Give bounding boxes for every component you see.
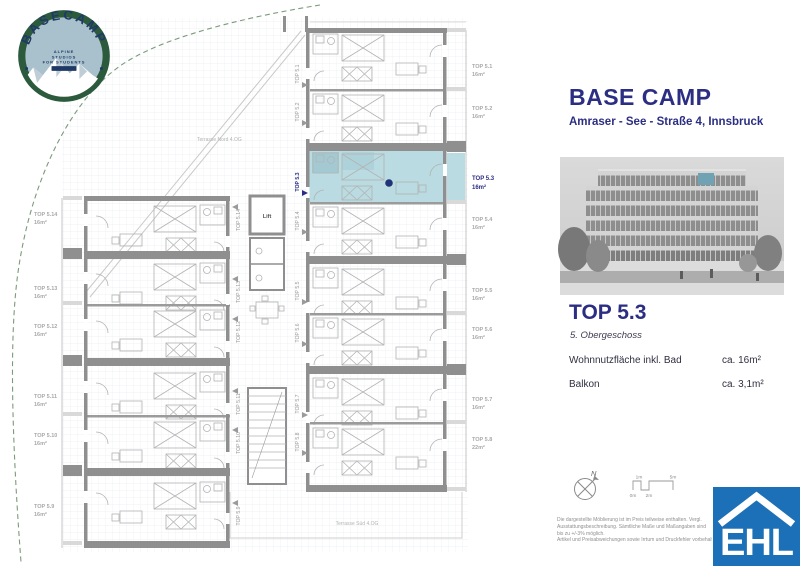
corridor-label: TOP 5.13 xyxy=(236,281,242,303)
unit-area: 16m² xyxy=(34,440,47,447)
unit-area: 16m² xyxy=(34,511,47,518)
corridor-label: TOP 5.2 xyxy=(295,102,301,121)
corridor-label: TOP 5.4 xyxy=(295,211,301,230)
staircase xyxy=(248,388,286,484)
corridor-label-highlighted: TOP 5.3 xyxy=(295,172,301,191)
balcony-label: Balkon xyxy=(569,379,600,390)
unit-label: TOP 5.2 xyxy=(472,106,492,112)
corridor-label: TOP 5.7 xyxy=(295,394,301,413)
disclaimer-line: Ausstattungsbeschreibung. Sämtliche Maße… xyxy=(557,524,712,531)
unit-label: TOP 5.1 xyxy=(472,64,492,70)
unit-label: TOP 5.9 xyxy=(34,504,54,510)
tree xyxy=(558,227,590,271)
terrace-north-label: Terrasse Nord 4.OG xyxy=(197,137,242,143)
unit-label: TOP 5.10 xyxy=(34,433,57,439)
unit-area: 16m² xyxy=(34,219,47,226)
balcony-value: ca. 3,1m² xyxy=(722,379,764,390)
corridor-label: TOP 5.12 xyxy=(236,321,242,343)
logo-banner xyxy=(52,66,77,71)
logo-dot-icon xyxy=(25,67,28,70)
living-area-value: ca. 16m² xyxy=(722,355,761,366)
corridor-label: TOP 5.11 xyxy=(236,393,242,415)
unit-label: TOP 5.8 xyxy=(472,437,492,443)
scale-label: 0m xyxy=(630,493,637,499)
tree xyxy=(739,254,757,272)
disclaimer: Die dargestellte Möblierung ist im Preis… xyxy=(557,517,712,544)
disclaimer-line: Artikel und Preisabweichungen sowie Irrt… xyxy=(557,537,712,544)
disclaimer-line: bis zu +/-3% möglich. xyxy=(557,531,712,538)
corridor-label: TOP 5.9 xyxy=(236,506,242,525)
unit-floor: 5. Obergeschoss xyxy=(570,330,642,341)
logo-tagline: ALPINE xyxy=(54,49,75,54)
unit-area: 16m² xyxy=(472,295,485,302)
ehl-logo: EHL xyxy=(713,487,800,566)
corridor-label: TOP 5.14 xyxy=(236,209,242,231)
unit-title: TOP 5.3 xyxy=(569,301,646,325)
project-title: BASE CAMP xyxy=(569,84,712,111)
tree xyxy=(586,240,610,272)
unit-area: 16m² xyxy=(472,224,485,231)
scale-label: 1m xyxy=(636,475,643,481)
unit-area: 22m² xyxy=(472,444,485,451)
unit-area: 16m² xyxy=(472,404,485,411)
unit-label: TOP 5.14 xyxy=(34,212,58,218)
tree xyxy=(754,235,782,271)
unit-label: TOP 5.5 xyxy=(472,288,492,294)
unit-label: TOP 5.13 xyxy=(34,286,57,292)
highlight-dot xyxy=(385,179,393,187)
unit-area: 16m² xyxy=(34,331,47,338)
unit-label: TOP 5.12 xyxy=(34,324,57,330)
corridor-label: TOP 5.8 xyxy=(295,432,301,451)
corridor-label: TOP 5.5 xyxy=(295,281,301,300)
unit-5-3-highlight xyxy=(306,151,465,202)
scale-label: 5m xyxy=(670,475,677,481)
unit-area: 16m² xyxy=(472,71,485,78)
logo-tagline: STUDIOS xyxy=(52,54,77,59)
disclaimer-line: Die dargestellte Möblierung ist im Preis… xyxy=(557,517,712,524)
unit-label: TOP 5.4 xyxy=(472,217,493,223)
ehl-logo-text: EHL xyxy=(720,522,794,564)
basecamp-logo: BASECAMP ALPINE STUDIOS FOR STUDENTS xyxy=(18,7,110,100)
unit-area: 16m² xyxy=(34,401,47,408)
north-label: N xyxy=(591,469,597,478)
unit-area: 16m² xyxy=(34,293,47,300)
living-area-label: Wohnnutzfläche inkl. Bad xyxy=(569,355,682,366)
unit-area: 16m² xyxy=(472,334,485,341)
terrace-south-label: Terrasse Süd 4.OG xyxy=(336,521,379,527)
logo-tagline: FOR STUDENTS xyxy=(43,60,86,65)
unit-label: TOP 5.11 xyxy=(34,394,57,400)
scale-label: 2m xyxy=(646,493,653,499)
corridor-label: TOP 5.1 xyxy=(295,64,301,83)
lift-label: Lift xyxy=(263,214,272,220)
highlighted-unit-photo xyxy=(698,173,714,185)
building-photo xyxy=(558,157,784,295)
unit-area-highlighted: 16m² xyxy=(472,184,486,191)
unit-label-highlighted: TOP 5.3 xyxy=(472,176,495,182)
project-address: Amraser - See - Straße 4, Innsbruck xyxy=(569,116,763,128)
corridor-label: TOP 5.10 xyxy=(236,432,242,454)
unit-label: TOP 5.6 xyxy=(472,327,492,333)
unit-label: TOP 5.7 xyxy=(472,397,492,403)
logo-dot-icon xyxy=(100,67,103,70)
corridor-label: TOP 5.6 xyxy=(295,323,301,342)
unit-area: 16m² xyxy=(472,113,485,120)
